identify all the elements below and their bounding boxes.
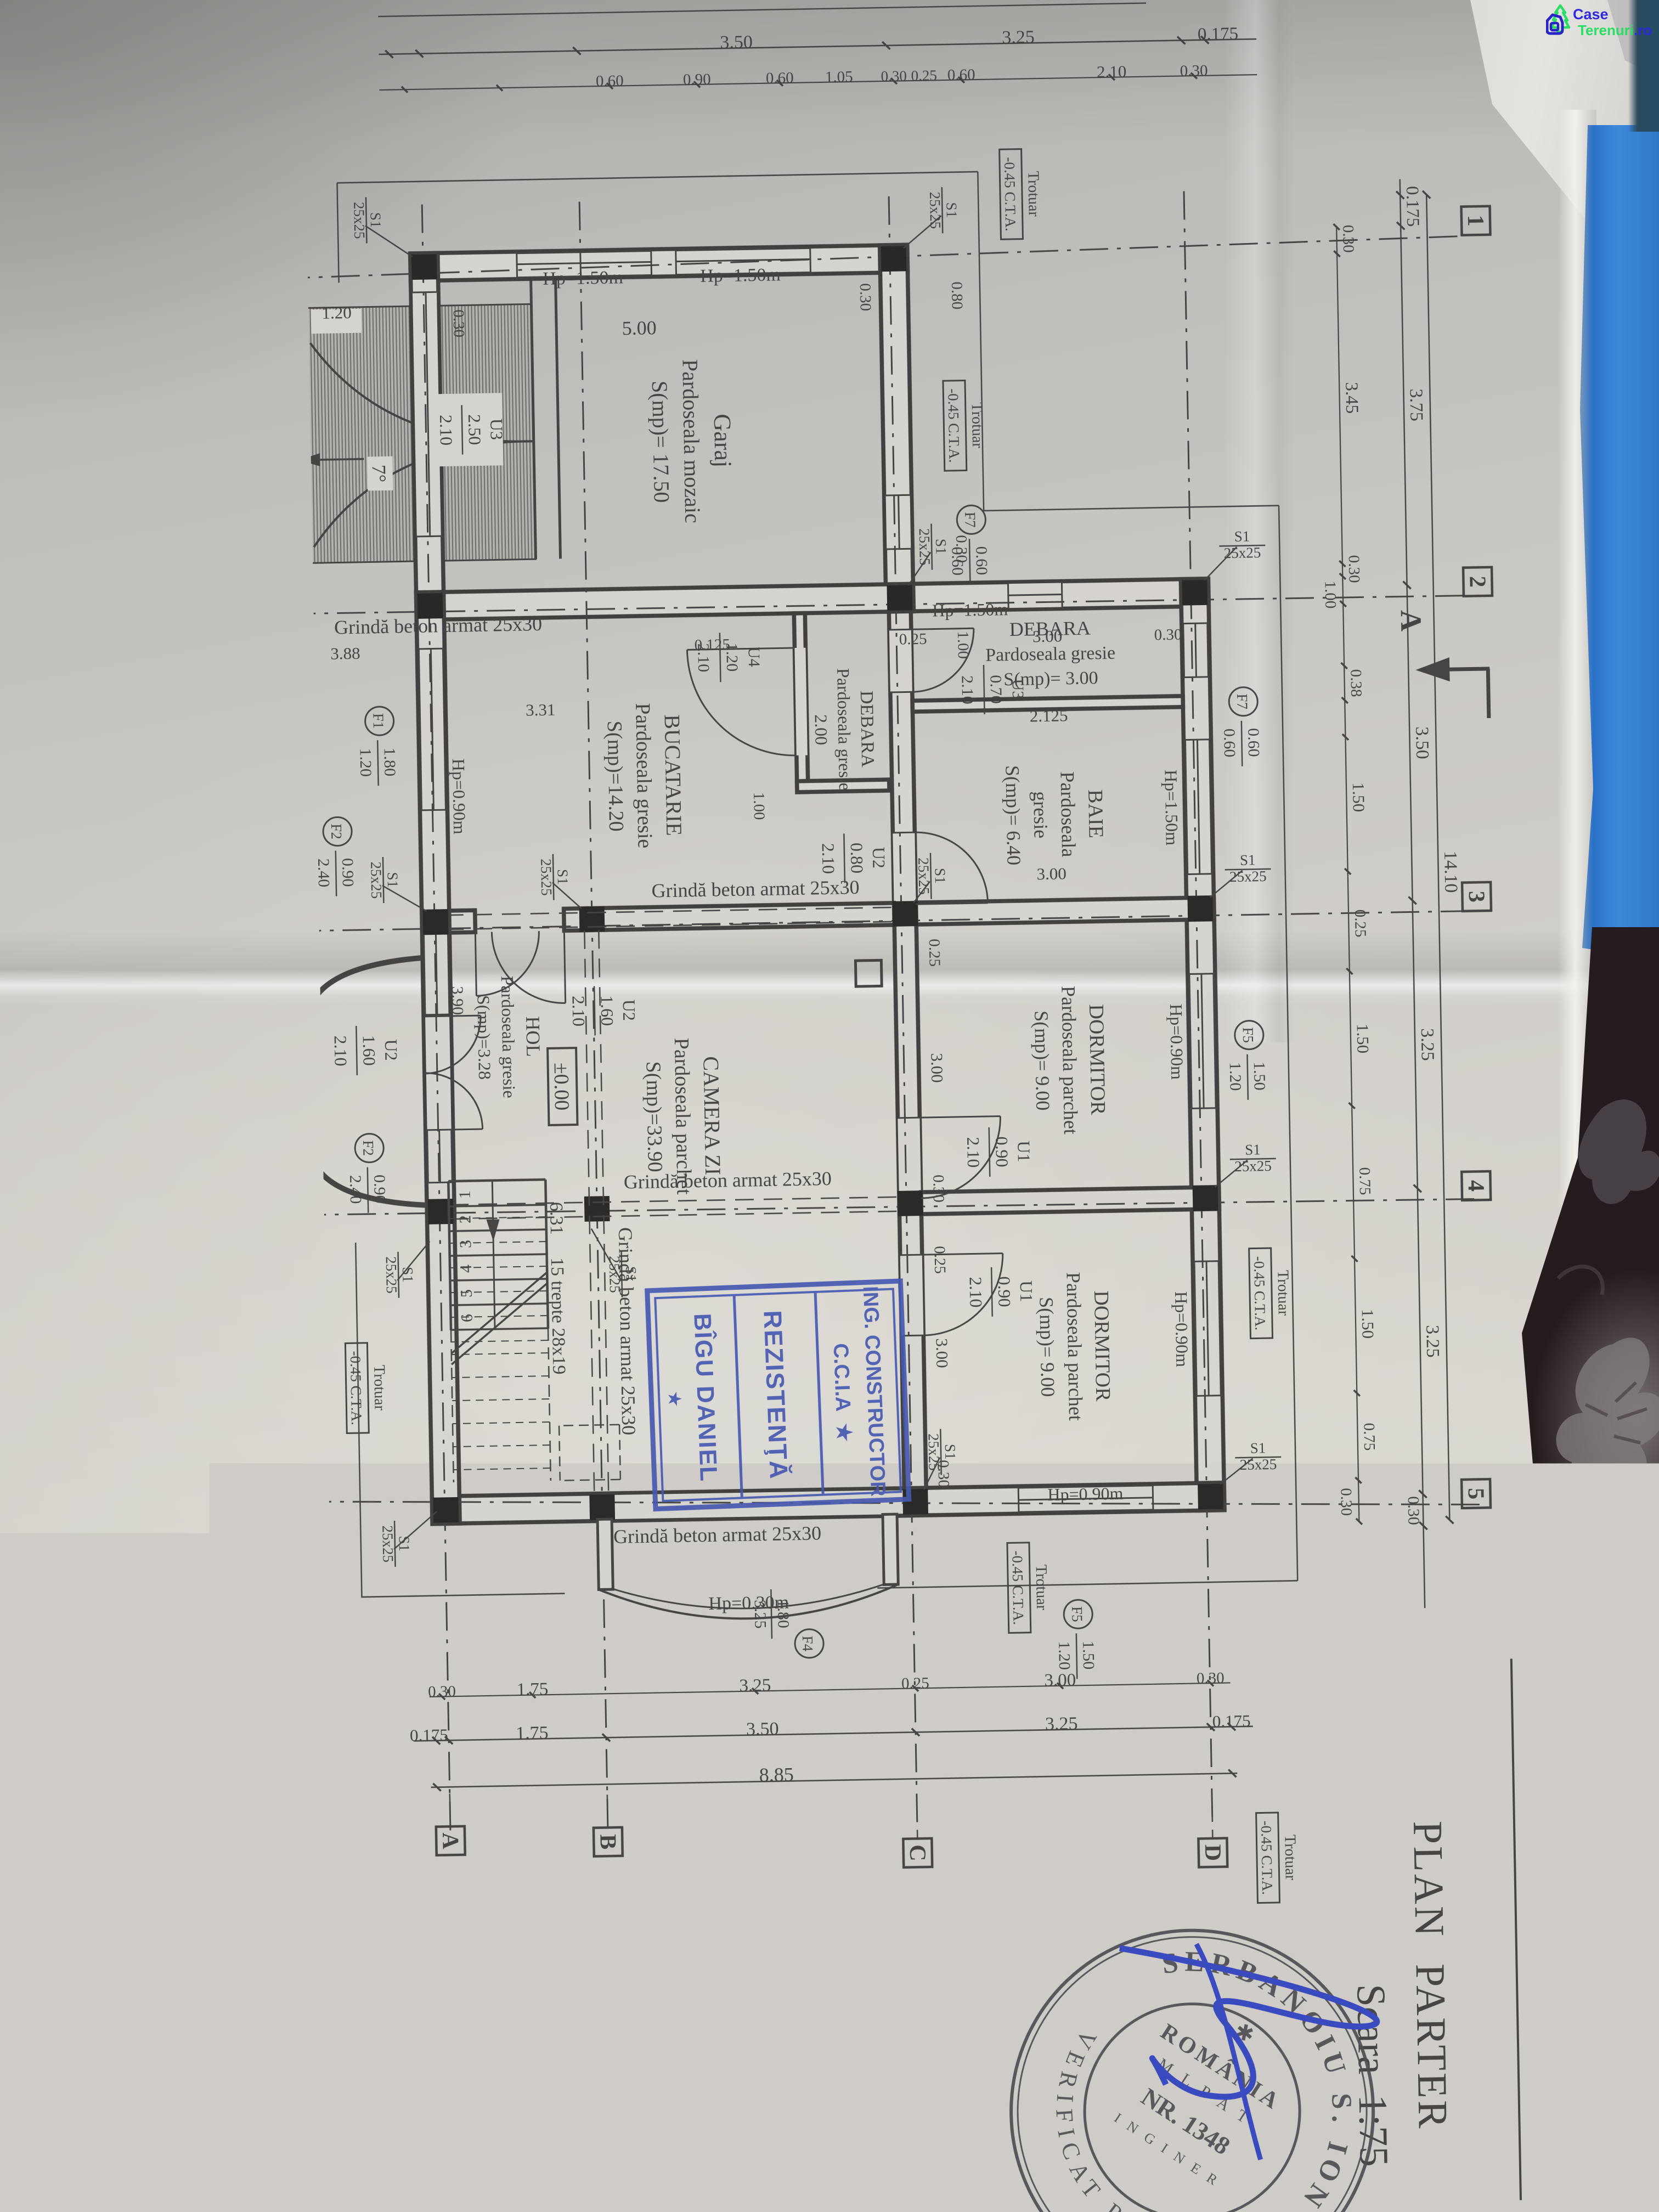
svg-text:0.25: 0.25	[911, 67, 937, 84]
svg-text:Garaj: Garaj	[709, 414, 737, 468]
svg-text:S1: S1	[1250, 1440, 1266, 1456]
svg-text:25x25: 25x25	[927, 191, 944, 229]
svg-text:±0.00: ±0.00	[550, 1062, 574, 1110]
svg-text:0.75: 0.75	[1360, 1423, 1378, 1451]
svg-text:1.20: 1.20	[1226, 1062, 1245, 1091]
svg-text:U3: U3	[487, 419, 507, 441]
svg-text:0.30: 0.30	[1337, 1488, 1355, 1516]
svg-text:3.00: 3.00	[927, 1053, 947, 1083]
svg-text:2.40: 2.40	[314, 858, 333, 887]
svg-text:25x25: 25x25	[916, 528, 933, 566]
svg-text:3.50: 3.50	[385, 1, 417, 21]
svg-text:-0.45 C.T.A.: -0.45 C.T.A.	[1251, 1256, 1268, 1330]
svg-text:3.25: 3.25	[739, 1675, 771, 1696]
svg-text:0.90: 0.90	[992, 1136, 1012, 1167]
svg-text:F2: F2	[360, 1140, 376, 1156]
svg-text:★: ★	[664, 1390, 685, 1408]
svg-text:Pardoseala gresie: Pardoseala gresie	[498, 975, 520, 1098]
svg-text:1.75: 1.75	[516, 1723, 549, 1743]
svg-text:2: 2	[0, 626, 24, 638]
svg-text:S1: S1	[399, 1267, 416, 1283]
svg-text:CAMERA ZI: CAMERA ZI	[698, 1056, 725, 1175]
svg-text:2.10: 2.10	[963, 1137, 984, 1168]
svg-text:3.45: 3.45	[1341, 382, 1362, 414]
svg-text:0.60: 0.60	[596, 72, 624, 90]
svg-text:0.30: 0.30	[1404, 1496, 1423, 1525]
svg-text:3.75: 3.75	[1406, 388, 1426, 421]
svg-text:7°: 7°	[368, 465, 390, 483]
svg-text:4: 4	[1463, 1180, 1488, 1192]
svg-text:3.50: 3.50	[720, 32, 753, 53]
svg-text:S1: S1	[384, 872, 400, 888]
svg-text:0.175: 0.175	[92, 1500, 111, 1538]
svg-text:Hp=1.50m: Hp=1.50m	[543, 267, 623, 289]
svg-text:1.85: 1.85	[484, 72, 515, 92]
svg-text:3: 3	[93, 1079, 109, 1086]
svg-text:A: A	[437, 1832, 463, 1850]
svg-text:2.40: 2.40	[346, 1175, 365, 1204]
svg-text:3.50: 3.50	[99, 772, 120, 805]
svg-text:0.30: 0.30	[142, 1482, 160, 1510]
svg-text:D: D	[1200, 1844, 1226, 1861]
svg-text:0.60: 0.60	[972, 546, 991, 575]
svg-text:BÎGU DANIEL: BÎGU DANIEL	[689, 1313, 723, 1483]
svg-text:0.30: 0.30	[1154, 626, 1182, 644]
svg-text:Pardoseala gresie: Pardoseala gresie	[985, 643, 1116, 665]
svg-text:S(mp)= 9.00: S(mp)= 9.00	[1030, 1011, 1054, 1111]
svg-text:2.40: 2.40	[250, 969, 269, 998]
svg-text:1.80: 1.80	[380, 747, 399, 776]
svg-text:4158: 4158	[0, 1157, 33, 1234]
svg-text:Grindă beton armat 25x30: Grindă beton armat 25x30	[334, 613, 543, 639]
svg-text:DORMITOR: DORMITOR	[1085, 1004, 1110, 1115]
svg-text:1.50: 1.50	[1079, 1640, 1098, 1669]
svg-text:3.25: 3.25	[751, 1600, 770, 1629]
svg-text:Podest: Podest	[249, 1058, 272, 1111]
svg-text:din: din	[88, 2006, 108, 2029]
svg-text:-0.45 C.T.A.: -0.45 C.T.A.	[347, 1351, 365, 1425]
svg-text:2.10: 2.10	[1097, 61, 1127, 81]
svg-text:2.125: 2.125	[1029, 706, 1068, 725]
svg-text:0.80: 0.80	[948, 281, 966, 309]
svg-text:Pardoseala: Pardoseala	[1056, 771, 1080, 857]
svg-text:2.10: 2.10	[568, 996, 589, 1027]
svg-text:0.90: 0.90	[338, 858, 357, 887]
svg-text:0.60: 0.60	[1220, 729, 1239, 758]
svg-text:25x25: 25x25	[915, 857, 932, 895]
svg-text:3.50: 3.50	[1412, 726, 1432, 759]
svg-text:25x25: 25x25	[538, 859, 555, 896]
svg-text:0.25: 0.25	[930, 1246, 949, 1274]
svg-text:Hp=0.90m: Hp=0.90m	[1171, 1291, 1192, 1368]
svg-text:0.90: 0.90	[683, 70, 711, 88]
svg-text:0.125: 0.125	[694, 636, 730, 654]
svg-text:Pardoseala parchet: Pardoseala parchet	[1062, 1272, 1087, 1421]
svg-text:1.20: 1.20	[1055, 1641, 1074, 1670]
svg-text:S1: S1	[1240, 851, 1256, 868]
svg-text:F7: F7	[1234, 693, 1250, 709]
svg-text:S1: S1	[933, 539, 949, 555]
svg-text:PLAN PARTER: PLAN PARTER	[1404, 1820, 1456, 2131]
svg-text:1.60: 1.60	[597, 995, 617, 1026]
svg-text:1.00: 1.00	[954, 631, 972, 659]
svg-text:S(mp)=3.28: S(mp)=3.28	[473, 995, 495, 1080]
svg-text:Trotuar: Trotuar	[1281, 1835, 1299, 1881]
svg-text:U3: U3	[1008, 679, 1027, 699]
svg-text:S1: S1	[367, 212, 383, 228]
svg-text:1.75: 1.75	[516, 1679, 548, 1700]
svg-text:3.90: 3.90	[448, 986, 467, 1015]
svg-text:BAIE: BAIE	[1084, 789, 1108, 838]
svg-text:1.60: 1.60	[124, 1082, 142, 1110]
svg-text:0.90: 0.90	[274, 969, 293, 998]
svg-text:5.00: 5.00	[622, 317, 657, 339]
svg-text:0.60: 0.60	[1244, 728, 1263, 757]
svg-text:S1: S1	[1245, 1141, 1261, 1158]
svg-text:6.31: 6.31	[546, 1202, 567, 1235]
svg-text:1: 1	[456, 1190, 474, 1199]
svg-text:3.75: 3.75	[96, 449, 117, 482]
svg-text:Case: Case	[1573, 6, 1609, 22]
svg-text:0.60: 0.60	[947, 66, 975, 84]
svg-text:2.10: 2.10	[331, 1035, 351, 1066]
svg-text:0.175: 0.175	[410, 1725, 448, 1745]
svg-text:1.50: 1.50	[1349, 782, 1369, 812]
svg-text:3 trepte 30x15: 3 trepte 30x15	[150, 1037, 171, 1139]
svg-text:3.10: 3.10	[80, 2046, 120, 2103]
svg-text:15 trepte 28x19: 15 trepte 28x19	[547, 1257, 569, 1375]
svg-text:0.25: 0.25	[899, 630, 927, 648]
svg-text:4: 4	[457, 1265, 475, 1273]
svg-text:S1: S1	[942, 1444, 958, 1460]
svg-text:0.175: 0.175	[1198, 24, 1239, 44]
svg-text:0.70: 0.70	[986, 675, 1005, 704]
svg-text:0.30: 0.30	[881, 67, 907, 84]
svg-text:Grindă beton armat 25x30: Grindă beton armat 25x30	[614, 1227, 640, 1436]
svg-text:0.30: 0.30	[1339, 225, 1357, 253]
svg-text:F3: F3	[264, 934, 280, 950]
svg-text:0.30: 0.30	[856, 283, 874, 311]
svg-text:2.10: 2.10	[819, 843, 839, 874]
svg-text:25x25: 25x25	[379, 1525, 396, 1562]
svg-text:1.80: 1.80	[774, 1599, 793, 1628]
svg-text:0.175: 0.175	[70, 251, 90, 290]
svg-text:1.50: 1.50	[1353, 1024, 1373, 1054]
svg-text:S1: S1	[943, 202, 960, 218]
svg-text:1.75: 1.75	[482, 36, 515, 57]
svg-text:A: A	[1394, 610, 1427, 631]
svg-text:0.90: 0.90	[994, 1276, 1014, 1307]
svg-text:25x25: 25x25	[351, 202, 368, 239]
svg-text:25x25: 25x25	[368, 861, 385, 899]
svg-text:S1: S1	[554, 869, 571, 885]
svg-text:U1: U1	[1017, 1280, 1037, 1302]
svg-text:0.175: 0.175	[1212, 1711, 1250, 1731]
svg-text:3.25: 3.25	[1417, 1028, 1438, 1061]
svg-text:0.30: 0.30	[952, 535, 970, 563]
svg-text:C: C	[905, 1844, 930, 1861]
svg-text:1.20: 1.20	[321, 303, 352, 323]
svg-text:3.00: 3.00	[932, 1338, 952, 1368]
svg-text:C.C.I.A ★: C.C.I.A ★	[829, 1343, 856, 1442]
svg-text:F5: F5	[1240, 1027, 1256, 1043]
svg-text:-0.45 C.T.A.: -0.45 C.T.A.	[1009, 1550, 1026, 1625]
svg-text:14.10: 14.10	[46, 910, 69, 955]
svg-text:2.50: 2.50	[465, 414, 485, 445]
svg-text:20: 20	[108, 2149, 127, 2169]
svg-text:3.00: 3.00	[1036, 864, 1066, 883]
svg-text:2.10: 2.10	[958, 675, 977, 704]
svg-text:U1: U1	[1014, 1141, 1034, 1163]
svg-text:0.30: 0.30	[934, 1460, 952, 1488]
svg-text:0.60: 0.60	[766, 69, 794, 87]
svg-text:−0.05: −0.05	[221, 1064, 241, 1105]
svg-text:8.85: 8.85	[759, 1763, 794, 1786]
svg-text:25x25: 25x25	[1234, 1158, 1272, 1175]
svg-text:0.30: 0.30	[138, 580, 155, 607]
svg-text:0.72: 0.72	[138, 651, 156, 679]
svg-text:Grindă beton armat 25x30: Grindă beton armat 25x30	[651, 876, 860, 902]
svg-text:25x25: 25x25	[1240, 1456, 1277, 1473]
svg-text:REZISTENŢĂ: REZISTENŢĂ	[758, 1310, 793, 1481]
svg-text:U4: U4	[744, 647, 763, 667]
svg-text:F4: F4	[799, 1635, 816, 1652]
svg-text:0.25: 0.25	[114, 616, 131, 642]
svg-text:3.31: 3.31	[526, 700, 556, 720]
svg-text:Hp=0.90m: Hp=0.90m	[449, 758, 470, 834]
svg-text:S(mp)=33.90: S(mp)=33.90	[642, 1061, 667, 1172]
svg-text:0.80: 0.80	[847, 843, 867, 874]
svg-text:2.10: 2.10	[966, 1277, 986, 1308]
svg-text:A: A	[18, 664, 52, 686]
svg-text:0.30: 0.30	[1180, 62, 1208, 80]
svg-text:0.30: 0.30	[1345, 555, 1363, 583]
svg-text:Trotuar: Trotuar	[1274, 1270, 1291, 1316]
svg-text:3.00: 3.00	[1032, 626, 1063, 646]
svg-text:DORMITOR: DORMITOR	[1090, 1290, 1115, 1402]
svg-text:2.50: 2.50	[135, 447, 155, 477]
svg-text:U2: U2	[619, 999, 640, 1021]
svg-text:Trotuar: Trotuar	[968, 402, 986, 448]
svg-text:Nr.: Nr.	[73, 1898, 93, 1920]
svg-text:2: 2	[1464, 575, 1489, 588]
svg-text:0.10: 0.10	[121, 986, 138, 1013]
svg-text:3.00: 3.00	[1044, 1670, 1076, 1690]
svg-text:Hp=0.90m: Hp=0.90m	[1166, 1004, 1187, 1080]
svg-text:0.85: 0.85	[148, 1197, 166, 1224]
svg-text:1: 1	[1463, 215, 1488, 227]
svg-text:3.25: 3.25	[1002, 27, 1035, 48]
svg-text:0.38: 0.38	[1347, 669, 1365, 697]
svg-text:Pardoseala gresie: Pardoseala gresie	[833, 668, 855, 791]
svg-text:Trotuar: Trotuar	[370, 1365, 388, 1411]
svg-text:Trotuar: Trotuar	[1032, 1565, 1050, 1611]
svg-text:1.00: 1.00	[1321, 580, 1339, 608]
svg-text:2: 2	[456, 1215, 474, 1224]
svg-text:0.175: 0.175	[1402, 186, 1423, 227]
svg-text:-0.45 C.T.A.: -0.45 C.T.A.	[1258, 1820, 1276, 1895]
svg-text:Pardoseala mozaic: Pardoseala mozaic	[678, 359, 705, 523]
svg-text:5: 5	[1463, 1488, 1488, 1500]
svg-text:2: 2	[121, 1079, 137, 1086]
svg-text:0.10: 0.10	[129, 1231, 146, 1257]
svg-text:0.30: 0.30	[929, 1175, 947, 1203]
svg-text:Grindă beton armat 25x30: Grindă beton armat 25x30	[613, 1522, 822, 1548]
svg-text:1.20: 1.20	[356, 748, 375, 777]
svg-text:Hp=1.50m: Hp=1.50m	[932, 599, 1008, 620]
svg-text:0.30: 0.30	[391, 76, 419, 94]
svg-text:0.74: 0.74	[144, 950, 162, 978]
svg-text:Terenuri.ro: Terenuri.ro	[1578, 22, 1652, 38]
svg-text:ING. CONSTRUCTOR: ING. CONSTRUCTOR	[859, 1286, 890, 1497]
svg-text:S(mp)= 17.50: S(mp)= 17.50	[647, 381, 674, 503]
svg-text:2.40: 2.40	[255, 1210, 273, 1239]
svg-text:0.90: 0.90	[279, 1210, 297, 1239]
svg-text:S1: S1	[1234, 528, 1250, 544]
svg-text:5: 5	[22, 1509, 48, 1521]
svg-text:Hp=1.50m: Hp=1.50m	[1161, 770, 1182, 846]
svg-text:BUCATARIE: BUCATARIE	[660, 714, 687, 836]
svg-text:S(mp)= 9.00: S(mp)= 9.00	[1035, 1297, 1059, 1397]
svg-text:-0.45 C.T.A.: -0.45 C.T.A.	[945, 388, 962, 463]
svg-text:25x25: 25x25	[383, 1256, 400, 1294]
svg-text:1.50: 1.50	[1250, 1062, 1269, 1091]
svg-text:VASLUI: VASLUI	[188, 1959, 214, 2019]
svg-text:0.75: 0.75	[1356, 1167, 1374, 1195]
svg-text:S(mp)= 6.40: S(mp)= 6.40	[1001, 765, 1025, 866]
svg-text:1.05: 1.05	[825, 68, 853, 86]
svg-text:U2: U2	[869, 847, 889, 868]
svg-text:2.10: 2.10	[436, 415, 456, 446]
svg-text:14.10: 14.10	[1440, 851, 1461, 893]
svg-text:0.30: 0.30	[450, 309, 468, 337]
svg-text:0.90: 0.90	[370, 1175, 389, 1204]
svg-text:F3: F3	[268, 1176, 285, 1192]
svg-text:1.80: 1.80	[141, 795, 161, 825]
svg-text:0.175: 0.175	[380, 38, 419, 58]
svg-text:3.88: 3.88	[330, 644, 360, 663]
svg-text:25x25: 25x25	[1229, 868, 1267, 885]
svg-text:3.50: 3.50	[746, 1719, 779, 1740]
svg-text:Hp=1.50m: Hp=1.50m	[700, 264, 781, 286]
svg-text:F5: F5	[1069, 1606, 1085, 1622]
svg-text:Pardoseala parchet: Pardoseala parchet	[1057, 986, 1082, 1135]
svg-text:6: 6	[458, 1314, 476, 1323]
svg-text:gresie: gresie	[1029, 791, 1052, 839]
svg-text:F1: F1	[370, 713, 386, 729]
svg-text:5: 5	[458, 1289, 476, 1298]
svg-text:25x25: 25x25	[1224, 544, 1261, 561]
svg-text:Trotuar: Trotuar	[1024, 171, 1042, 217]
svg-text:F7: F7	[962, 512, 978, 528]
svg-text:S1: S1	[932, 868, 948, 884]
svg-text:3: 3	[456, 1240, 475, 1249]
svg-text:Pardoseala parchet: Pardoseala parchet	[670, 1037, 696, 1195]
svg-text:0.25: 0.25	[926, 939, 944, 967]
svg-text:1: 1	[0, 296, 18, 308]
svg-text:3.25: 3.25	[103, 1073, 123, 1106]
svg-text:Pardoseala gresie: Pardoseala gresie	[631, 703, 657, 849]
svg-text:1.00: 1.00	[750, 792, 768, 820]
svg-text:DEBARA: DEBARA	[856, 690, 878, 768]
svg-text:1.50: 1.50	[1358, 1309, 1378, 1339]
svg-text:S1: S1	[396, 1536, 413, 1551]
svg-text:-0.45 C.T.A.: -0.45 C.T.A.	[1001, 157, 1019, 232]
svg-text:3: 3	[1463, 890, 1488, 902]
svg-text:U2: U2	[381, 1039, 402, 1061]
svg-text:3.00: 3.00	[131, 1359, 151, 1391]
svg-text:0.30: 0.30	[428, 1683, 456, 1701]
svg-text:3: 3	[7, 944, 32, 956]
svg-text:Hp=0.90m: Hp=0.90m	[1047, 1483, 1124, 1504]
svg-text:HOL: HOL	[522, 1016, 544, 1057]
svg-text:3.25: 3.25	[1045, 1713, 1078, 1734]
svg-text:S(mp)=14.20: S(mp)=14.20	[603, 720, 628, 832]
svg-text:B: B	[595, 1834, 620, 1850]
svg-text:F2: F2	[328, 823, 345, 839]
svg-text:2.00: 2.00	[811, 714, 832, 746]
svg-text:3.25: 3.25	[1422, 1325, 1443, 1358]
svg-text:1.60: 1.60	[359, 1035, 380, 1066]
